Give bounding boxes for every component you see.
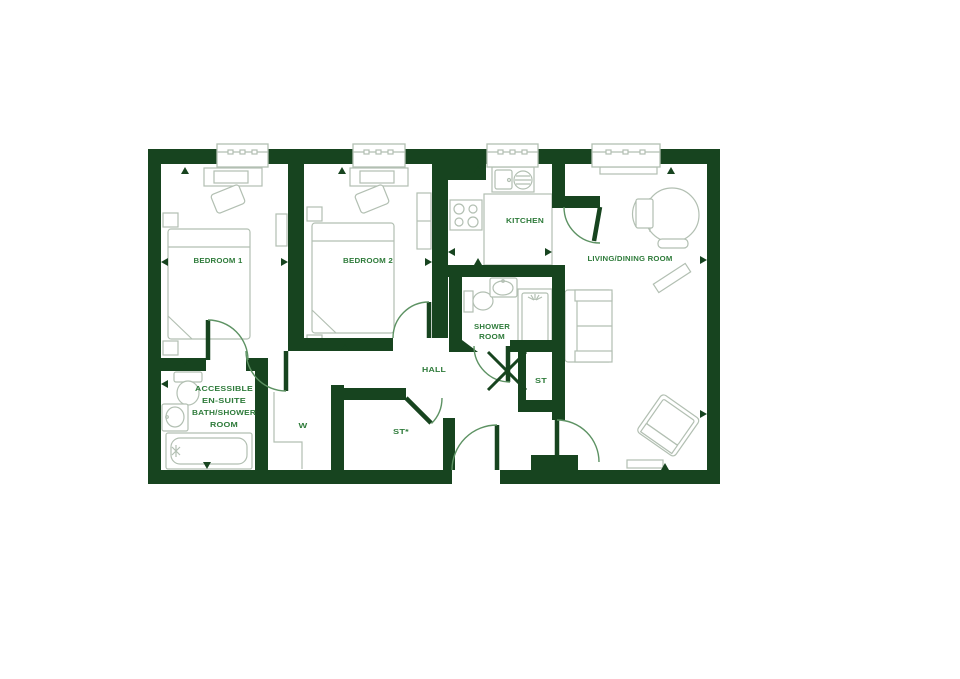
wall-living-west (552, 277, 565, 420)
wall-bottom-left (148, 470, 452, 484)
window-bedroom1 (217, 144, 268, 167)
label-living: LIVING/DINING ROOM (588, 254, 673, 263)
bedside-table (307, 207, 322, 221)
shower-room-fixtures (464, 278, 552, 347)
label-hall: HALL (422, 365, 446, 374)
wall-st2-top (344, 388, 406, 400)
living-furniture (565, 167, 700, 468)
wall-bed1-bed2 (288, 164, 304, 351)
door-bedroom2 (393, 302, 429, 338)
radiator (600, 167, 657, 174)
table-base (658, 239, 688, 248)
wall-left (148, 149, 161, 484)
door-shower-room (474, 346, 510, 382)
label-bedroom2: BEDROOM 2 (343, 256, 393, 265)
label-ensuite-line1: ACCESSIBLE (195, 384, 253, 393)
counter (484, 194, 552, 265)
wall-shower-left (449, 277, 462, 340)
basin-bowl (493, 281, 513, 295)
wall-right (707, 149, 720, 484)
sideboard (653, 263, 690, 292)
label-kitchen: KITCHEN (506, 216, 544, 225)
desk-inset (214, 171, 248, 183)
floorplan-svg: BEDROOM 1 BEDROOM 2 KITCHEN LIVING/DININ… (0, 0, 960, 679)
bedside-table (163, 213, 178, 227)
wall-living-door-stub (531, 455, 578, 471)
bathtub-inner (171, 438, 247, 464)
wall-bottom-right (500, 470, 720, 484)
sofa-arm (575, 290, 612, 301)
radiator (276, 214, 287, 246)
wall-kitchen-bottom (432, 265, 565, 277)
door-entrance (452, 425, 497, 470)
window-living (592, 144, 660, 167)
chair (354, 184, 389, 214)
closet-step (274, 392, 302, 469)
threshold (627, 460, 663, 468)
label-bedroom1: BEDROOM 1 (194, 256, 244, 265)
label-st: ST (535, 376, 547, 385)
label-ensuite-line4: ROOM (210, 420, 238, 429)
floorplan-page: BEDROOM 1 BEDROOM 2 KITCHEN LIVING/DININ… (0, 0, 960, 679)
label-ensuite-line3: BATH/SHOWER (192, 408, 256, 417)
door-st2 (406, 398, 442, 424)
window-bedroom2 (353, 144, 405, 167)
wall-kitchen-stub (552, 196, 600, 208)
shower-tray (522, 293, 548, 343)
door-kitchen (564, 207, 600, 243)
bedside-table (163, 341, 178, 355)
wall-w-right (331, 385, 344, 470)
wall-kitchen-right (552, 164, 565, 198)
sofa-arm (575, 351, 612, 362)
w-closet-fittings (274, 392, 302, 469)
dining-chair (636, 199, 653, 228)
wall-ensuite-top-b (246, 358, 268, 371)
desk-inset (360, 171, 394, 183)
sink-bowl (495, 170, 512, 189)
label-shower-line2: ROOM (479, 332, 505, 341)
label-shower-line1: SHOWER (474, 322, 510, 331)
wall-bed2-kitchen (432, 164, 448, 338)
label-ensuite-line2: EN-SUITE (202, 396, 246, 405)
wall-shower-bottom (510, 340, 552, 352)
bed (312, 223, 394, 333)
toilet-cistern (464, 291, 473, 312)
chair (210, 184, 245, 214)
wall-bed2-bottom (304, 338, 393, 351)
armchair (636, 393, 700, 457)
label-st-star: ST* (393, 427, 409, 436)
window-kitchen (487, 144, 538, 167)
label-w: W (299, 421, 309, 430)
